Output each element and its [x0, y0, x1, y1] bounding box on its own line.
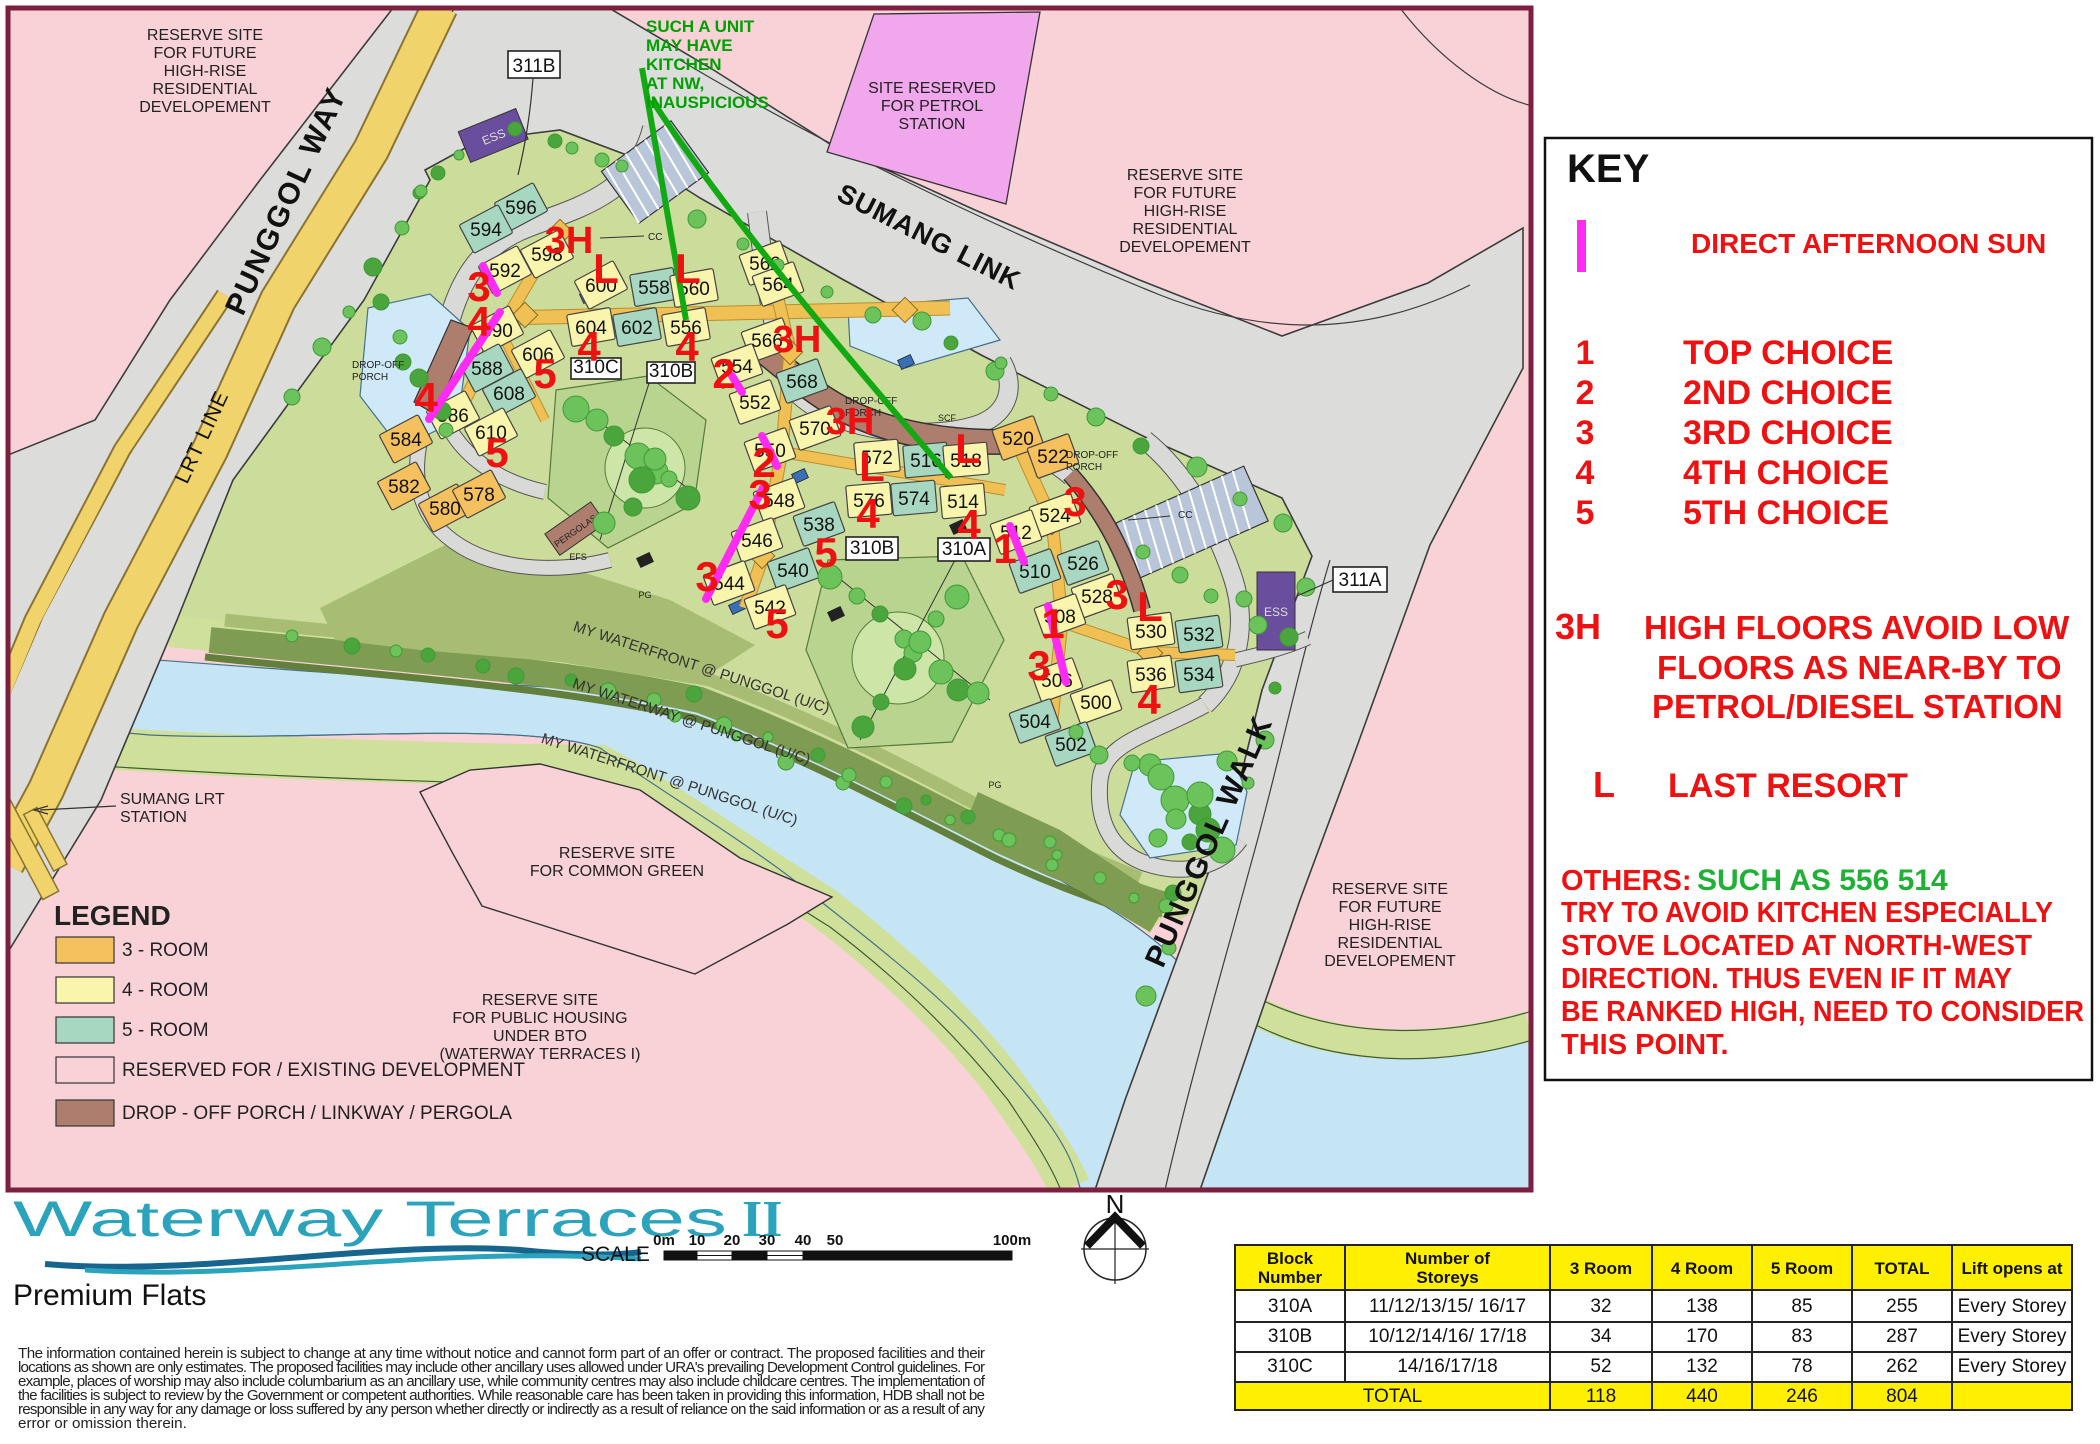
svg-text:UNDER BTO: UNDER BTO [493, 1028, 587, 1045]
svg-text:PETROL/DIESEL STATION: PETROL/DIESEL STATION [1652, 688, 2063, 725]
svg-text:1: 1 [993, 525, 1016, 572]
svg-text:34: 34 [1590, 1326, 1612, 1347]
svg-text:DEVELOPEMENT: DEVELOPEMENT [1119, 239, 1251, 256]
svg-text:310B: 310B [850, 538, 894, 559]
svg-text:HIGH-RISE: HIGH-RISE [1349, 917, 1432, 934]
svg-text:5 - ROOM: 5 - ROOM [122, 1020, 209, 1041]
svg-text:310B: 310B [1268, 1326, 1312, 1347]
svg-text:N: N [1106, 1189, 1125, 1219]
svg-text:40: 40 [795, 1232, 812, 1249]
svg-text:5TH CHOICE: 5TH CHOICE [1683, 494, 1889, 532]
svg-text:Every Storey: Every Storey [1958, 1296, 2067, 1317]
svg-text:3 Room: 3 Room [1570, 1259, 1632, 1278]
svg-text:TRY TO AVOID KITCHEN ESPECIALL: TRY TO AVOID KITCHEN ESPECIALLY [1561, 897, 2053, 929]
svg-text:SCALE: SCALE [581, 1243, 650, 1266]
svg-text:DEVELOPEMENT: DEVELOPEMENT [1324, 953, 1456, 970]
svg-text:LAST RESORT: LAST RESORT [1668, 767, 1908, 805]
svg-text:540: 540 [777, 561, 809, 582]
svg-text:Waterway Terraces: Waterway Terraces [13, 1191, 727, 1247]
svg-text:FOR COMMON GREEN: FOR COMMON GREEN [530, 863, 704, 880]
svg-text:INAUSPICIOUS: INAUSPICIOUS [646, 93, 769, 112]
svg-text:4: 4 [1137, 676, 1161, 723]
svg-text:10: 10 [689, 1232, 706, 1249]
svg-text:FOR PUBLIC HOUSING: FOR PUBLIC HOUSING [452, 1010, 627, 1027]
svg-text:582: 582 [388, 477, 420, 498]
svg-text:FLOORS AS NEAR-BY TO: FLOORS AS NEAR-BY TO [1657, 649, 2062, 686]
svg-text:Premium Flats: Premium Flats [13, 1279, 206, 1312]
svg-text:0m: 0m [653, 1232, 675, 1249]
svg-text:RESERVE SITE: RESERVE SITE [482, 992, 598, 1009]
svg-text:HIGH-RISE: HIGH-RISE [164, 63, 247, 80]
svg-text:CC: CC [648, 232, 662, 243]
svg-text:310A: 310A [1268, 1296, 1313, 1317]
svg-text:TOP CHOICE: TOP CHOICE [1683, 334, 1893, 372]
svg-text:RESERVED FOR / EXISTING DEVELO: RESERVED FOR / EXISTING DEVELOPMENT [122, 1060, 525, 1081]
svg-text:588: 588 [471, 359, 503, 380]
svg-text:SCF: SCF [938, 413, 957, 423]
svg-text:255: 255 [1886, 1296, 1918, 1317]
svg-text:CC: CC [1178, 510, 1192, 521]
svg-text:14/16/17/18: 14/16/17/18 [1397, 1356, 1497, 1377]
svg-text:4: 4 [577, 323, 601, 370]
svg-text:4: 4 [1576, 454, 1595, 492]
svg-text:PORCH: PORCH [352, 372, 388, 383]
svg-text:DROP - OFF PORCH / LINKWAY / P: DROP - OFF PORCH / LINKWAY / PERGOLA [122, 1103, 512, 1124]
svg-text:526: 526 [1067, 554, 1099, 575]
svg-text:20: 20 [724, 1232, 741, 1249]
svg-text:504: 504 [1019, 712, 1051, 733]
svg-text:THIS POINT.: THIS POINT. [1561, 1029, 1729, 1061]
svg-text:4: 4 [414, 374, 438, 421]
svg-text:85: 85 [1791, 1296, 1812, 1317]
svg-text:52: 52 [1590, 1356, 1611, 1377]
svg-text:3H: 3H [773, 319, 822, 361]
svg-text:FOR PETROL: FOR PETROL [881, 98, 983, 115]
svg-text:558: 558 [638, 278, 670, 299]
svg-text:5: 5 [1576, 494, 1595, 532]
svg-text:83: 83 [1791, 1326, 1812, 1347]
svg-text:STOVE LOCATED AT NORTH-WEST: STOVE LOCATED AT NORTH-WEST [1561, 930, 2032, 962]
svg-text:L: L [955, 425, 981, 472]
svg-text:3H: 3H [545, 220, 594, 262]
svg-text:5: 5 [814, 529, 837, 576]
svg-text:4: 4 [856, 490, 880, 537]
svg-text:287: 287 [1886, 1326, 1918, 1347]
svg-text:EFS: EFS [569, 552, 587, 562]
svg-text:4: 4 [675, 323, 699, 370]
svg-text:Number: Number [1258, 1268, 1323, 1287]
svg-text:L: L [1137, 583, 1163, 630]
svg-text:ESS: ESS [1264, 605, 1288, 619]
svg-text:500: 500 [1080, 693, 1112, 714]
svg-text:5 Room: 5 Room [1771, 1259, 1833, 1278]
svg-text:2ND CHOICE: 2ND CHOICE [1683, 374, 1893, 412]
svg-text:5: 5 [765, 600, 788, 647]
svg-text:Every Storey: Every Storey [1958, 1326, 2067, 1347]
svg-text:30: 30 [759, 1232, 776, 1249]
svg-text:DROP-OFF: DROP-OFF [1066, 450, 1118, 461]
svg-text:FOR FUTURE: FOR FUTURE [1133, 185, 1236, 202]
svg-text:78: 78 [1791, 1356, 1812, 1377]
svg-text:5: 5 [533, 350, 556, 397]
svg-text:4 - ROOM: 4 - ROOM [122, 980, 209, 1001]
svg-text:602: 602 [621, 318, 653, 339]
svg-text:502: 502 [1055, 735, 1087, 756]
svg-text:246: 246 [1786, 1386, 1818, 1407]
svg-text:KEY: KEY [1567, 147, 1650, 191]
svg-text:522: 522 [1037, 447, 1069, 468]
svg-text:1: 1 [1576, 334, 1595, 372]
svg-text:OTHERS:: OTHERS: [1561, 865, 1692, 897]
svg-text:546: 546 [741, 531, 773, 552]
svg-text:3RD CHOICE: 3RD CHOICE [1683, 414, 1893, 452]
svg-text:LEGEND: LEGEND [54, 900, 171, 931]
svg-text:PG: PG [988, 780, 1001, 790]
svg-text:608: 608 [493, 384, 525, 405]
svg-text:4 Room: 4 Room [1671, 1259, 1733, 1278]
svg-text:3: 3 [748, 471, 771, 518]
svg-text:Lift opens at: Lift opens at [1961, 1259, 2062, 1278]
svg-text:594: 594 [470, 220, 502, 241]
svg-text:Every Storey: Every Storey [1958, 1356, 2067, 1377]
svg-text:PORCH: PORCH [1066, 462, 1102, 473]
svg-text:5: 5 [485, 429, 508, 476]
svg-text:BE RANKED HIGH, NEED TO CONSID: BE RANKED HIGH, NEED TO CONSIDER [1561, 996, 2084, 1028]
svg-text:1: 1 [1041, 600, 1064, 647]
svg-text:RESIDENTIAL: RESIDENTIAL [1338, 935, 1443, 952]
svg-text:596: 596 [505, 198, 537, 219]
svg-text:310C: 310C [1267, 1356, 1312, 1377]
svg-text:3 - ROOM: 3 - ROOM [122, 940, 209, 961]
svg-text:138: 138 [1686, 1296, 1718, 1317]
svg-text:L: L [593, 245, 619, 292]
svg-text:SUCH AS 556 514: SUCH AS 556 514 [1697, 864, 1948, 897]
svg-text:SITE RESERVED: SITE RESERVED [868, 80, 996, 97]
svg-text:Storeys: Storeys [1416, 1268, 1478, 1287]
svg-text:50: 50 [827, 1232, 844, 1249]
svg-text:RESERVE SITE: RESERVE SITE [147, 27, 263, 44]
svg-text:580: 580 [429, 499, 461, 520]
svg-text:2: 2 [712, 350, 735, 397]
svg-text:132: 132 [1686, 1356, 1718, 1377]
svg-text:TOTAL: TOTAL [1363, 1386, 1422, 1407]
svg-text:KITCHEN: KITCHEN [646, 55, 722, 74]
svg-text:RESIDENTIAL: RESIDENTIAL [153, 81, 258, 98]
svg-text:584: 584 [390, 430, 422, 451]
svg-text:error or omission therein.: error or omission therein. [18, 1415, 187, 1432]
svg-text:440: 440 [1686, 1386, 1718, 1407]
svg-text:RESERVE SITE: RESERVE SITE [1127, 167, 1243, 184]
svg-text:100m: 100m [993, 1232, 1031, 1249]
svg-text:10/12/14/16/ 17/18: 10/12/14/16/ 17/18 [1368, 1326, 1526, 1347]
svg-text:3: 3 [695, 553, 718, 600]
svg-text:DROP-OFF: DROP-OFF [352, 360, 404, 371]
svg-text:STATION: STATION [899, 116, 966, 133]
svg-text:4TH CHOICE: 4TH CHOICE [1683, 454, 1889, 492]
svg-text:DEVELOPEMENT: DEVELOPEMENT [139, 99, 271, 116]
svg-text:3: 3 [1576, 414, 1595, 452]
svg-text:2: 2 [1576, 374, 1595, 412]
svg-text:574: 574 [898, 489, 930, 510]
svg-text:32: 32 [1590, 1296, 1611, 1317]
svg-text:Block: Block [1267, 1249, 1314, 1268]
svg-text:HIGH-RISE: HIGH-RISE [1144, 203, 1227, 220]
svg-text:RESERVE SITE: RESERVE SITE [1332, 881, 1448, 898]
svg-text:STATION: STATION [120, 809, 187, 826]
svg-text:3: 3 [1105, 571, 1128, 618]
svg-text:3: 3 [1063, 478, 1086, 525]
svg-text:4: 4 [467, 298, 491, 345]
svg-text:RESIDENTIAL: RESIDENTIAL [1133, 221, 1238, 238]
svg-text:L: L [859, 443, 885, 490]
svg-text:3H: 3H [1555, 606, 1601, 647]
svg-text:DIRECTION. THUS EVEN IF IT MAY: DIRECTION. THUS EVEN IF IT MAY [1561, 963, 2012, 995]
svg-text:311B: 311B [513, 56, 556, 77]
svg-text:PG: PG [638, 590, 651, 600]
svg-text:3: 3 [1027, 642, 1050, 689]
svg-text:4: 4 [957, 501, 981, 548]
svg-text:578: 578 [463, 485, 495, 506]
svg-text:FOR FUTURE: FOR FUTURE [1338, 899, 1441, 916]
svg-text:311A: 311A [1339, 570, 1382, 591]
svg-text:11/12/13/15/ 16/17: 11/12/13/15/ 16/17 [1369, 1296, 1526, 1317]
svg-text:262: 262 [1886, 1356, 1918, 1377]
svg-text:RESERVE SITE: RESERVE SITE [559, 845, 675, 862]
svg-text:L: L [1593, 764, 1615, 805]
svg-text:SUMANG LRT: SUMANG LRT [120, 791, 225, 808]
svg-text:568: 568 [786, 372, 818, 393]
svg-text:DIRECT AFTERNOON SUN: DIRECT AFTERNOON SUN [1691, 228, 2046, 259]
svg-text:118: 118 [1586, 1386, 1616, 1407]
svg-text:3H: 3H [826, 401, 875, 443]
svg-text:SUCH A UNIT: SUCH A UNIT [646, 17, 755, 36]
svg-text:L: L [675, 245, 701, 292]
svg-text:170: 170 [1686, 1326, 1718, 1347]
svg-text:MAY HAVE: MAY HAVE [646, 36, 733, 55]
svg-text:HIGH FLOORS AVOID LOW: HIGH FLOORS AVOID LOW [1644, 609, 2070, 646]
svg-text:FOR FUTURE: FOR FUTURE [153, 45, 256, 62]
svg-text:532: 532 [1183, 625, 1215, 646]
svg-text:AT NW,: AT NW, [646, 74, 704, 93]
svg-text:804: 804 [1886, 1386, 1918, 1407]
svg-text:552: 552 [739, 393, 771, 414]
svg-text:534: 534 [1183, 665, 1215, 686]
svg-text:TOTAL: TOTAL [1874, 1259, 1929, 1278]
svg-text:520: 520 [1002, 429, 1034, 450]
svg-text:Number of: Number of [1405, 1249, 1490, 1268]
